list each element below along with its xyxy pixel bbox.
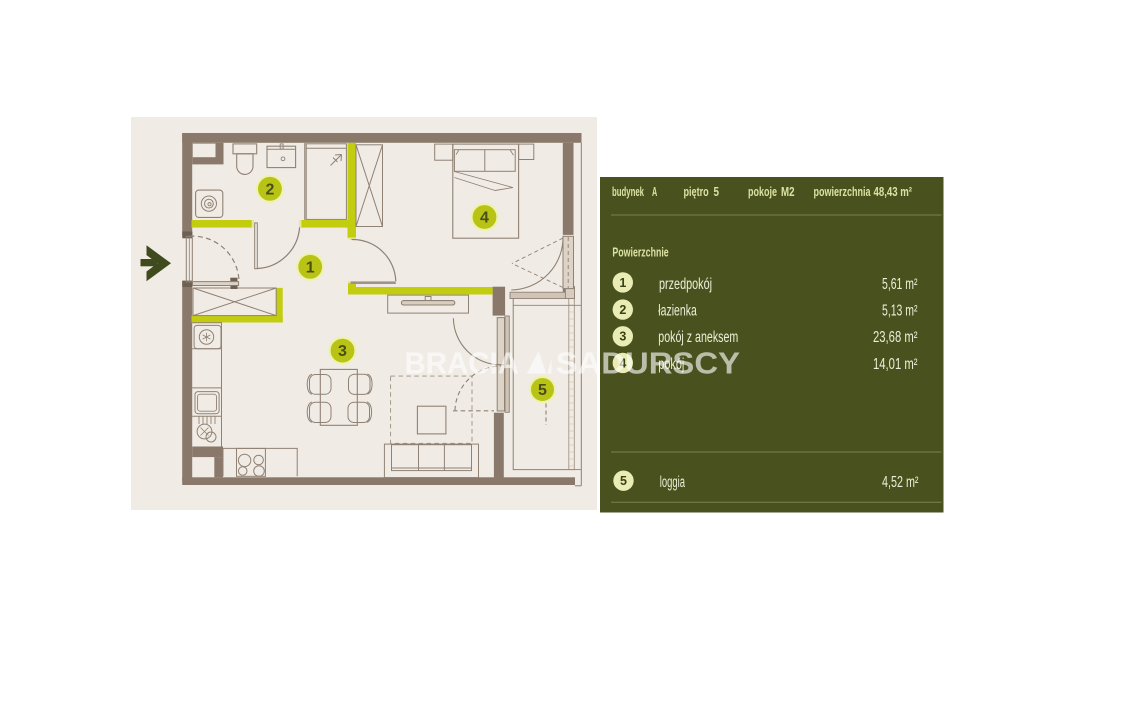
svg-text:5: 5 xyxy=(620,474,627,488)
svg-text:2: 2 xyxy=(265,181,274,198)
svg-text:5,13 m²: 5,13 m² xyxy=(882,303,918,320)
svg-text:4: 4 xyxy=(480,210,489,227)
svg-text:loggia: loggia xyxy=(660,474,685,491)
svg-text:14,01 m²: 14,01 m² xyxy=(873,356,918,373)
svg-text:4,52 m²: 4,52 m² xyxy=(882,474,919,491)
svg-text:23,68 m²: 23,68 m² xyxy=(873,329,918,346)
svg-text:3: 3 xyxy=(619,330,626,344)
svg-text:5: 5 xyxy=(714,184,720,199)
svg-text:3: 3 xyxy=(338,343,347,360)
svg-text:48,43 m²: 48,43 m² xyxy=(874,184,913,199)
svg-text:M2: M2 xyxy=(781,184,795,199)
svg-text:5,61 m²: 5,61 m² xyxy=(882,276,918,293)
svg-text:A: A xyxy=(652,184,658,199)
svg-text:przedpokój: przedpokój xyxy=(659,276,712,293)
svg-text:budynek: budynek xyxy=(612,184,644,199)
svg-text:2: 2 xyxy=(619,303,626,317)
svg-text:łazienka: łazienka xyxy=(658,303,697,320)
svg-text:pokoje: pokoje xyxy=(748,184,777,199)
svg-text:piętro: piętro xyxy=(684,184,709,199)
svg-text:pokój z aneksem: pokój z aneksem xyxy=(658,329,738,346)
svg-text:1: 1 xyxy=(306,259,315,276)
svg-text:Powierzchnie: Powierzchnie xyxy=(612,244,668,259)
svg-text:1: 1 xyxy=(619,276,626,290)
svg-text:5: 5 xyxy=(538,382,547,399)
svg-text:SADURSCY: SADURSCY xyxy=(556,346,741,381)
svg-text:powierzchnia: powierzchnia xyxy=(814,184,872,199)
svg-text:BRACIA: BRACIA xyxy=(405,346,520,381)
